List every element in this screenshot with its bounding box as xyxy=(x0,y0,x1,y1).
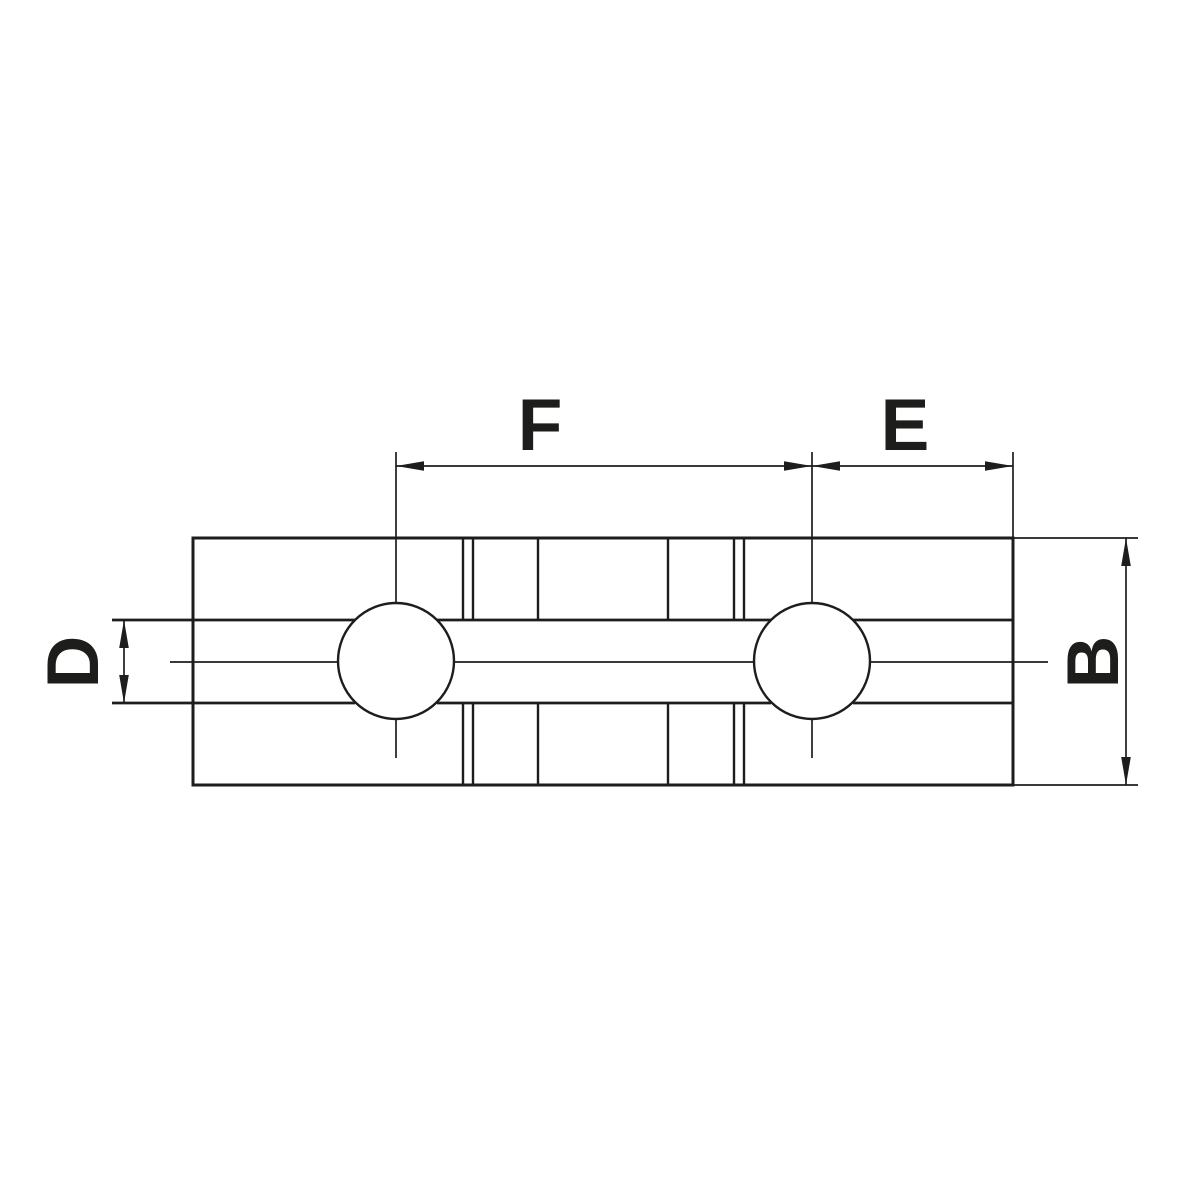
soft-jaw-technical-drawing: F E D B xyxy=(0,0,1200,1200)
mounting-hole-left xyxy=(338,603,454,719)
dim-F-arrow-left xyxy=(396,461,424,471)
dim-label-E: E xyxy=(881,385,930,466)
dim-E-arrow-left xyxy=(812,461,840,471)
dim-B-arrow-down xyxy=(1121,757,1131,785)
dim-label-B: B xyxy=(1053,636,1134,689)
dim-B-arrow-up xyxy=(1121,538,1131,566)
extension-lines xyxy=(1013,452,1138,785)
dimension-lines xyxy=(124,466,1126,785)
technical-drawing-page: F E D B xyxy=(0,0,1200,1200)
dim-E-arrow-right xyxy=(985,461,1013,471)
centerlines xyxy=(170,452,1048,758)
part-geometry-layer xyxy=(112,452,1138,785)
dim-F-arrow-right xyxy=(784,461,812,471)
mounting-hole-right xyxy=(754,603,870,719)
dim-label-F: F xyxy=(518,385,563,466)
dimension-arrowheads xyxy=(119,461,1131,785)
dim-D-arrow-up xyxy=(119,620,129,648)
dim-label-D: D xyxy=(33,636,114,689)
dim-D-arrow-down xyxy=(119,675,129,703)
